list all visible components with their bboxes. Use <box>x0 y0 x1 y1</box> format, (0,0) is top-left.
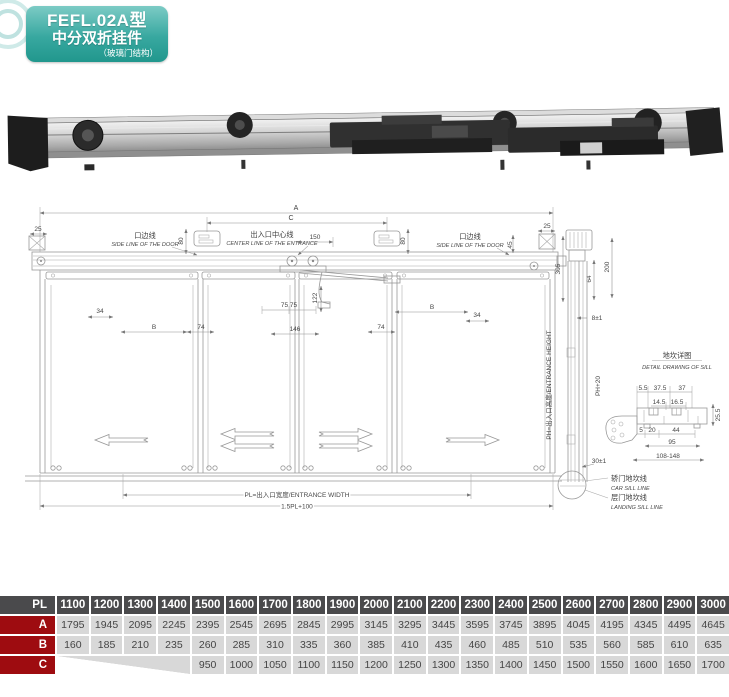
table-col-header: 2900 <box>664 596 696 614</box>
table-cell: 385 <box>360 636 392 654</box>
table-cell: 1350 <box>461 656 493 674</box>
table-cell: 1050 <box>259 656 291 674</box>
table-col-header: 2200 <box>428 596 460 614</box>
table-cell: 1000 <box>226 656 258 674</box>
arrow-right-double-2 <box>319 441 372 452</box>
table-cell: 460 <box>461 636 493 654</box>
table-cell: 4495 <box>664 616 696 634</box>
right-end-bracket <box>686 107 724 156</box>
catalog-page: { "badge": { "model": "FEFL.02A型", "name… <box>0 0 729 697</box>
table-col-header: 1900 <box>327 596 359 614</box>
total-width-label: 1.5PL+100 <box>281 504 313 511</box>
side-line-label-en-right: SIDE LINE OF THE DOOR <box>436 243 503 249</box>
dim-122: 122 <box>312 292 319 303</box>
table-empty-region <box>57 656 190 674</box>
sill-dim-5: 5 <box>639 427 643 434</box>
table-col-header: 2800 <box>630 596 662 614</box>
dim-34-left: 34 <box>96 308 104 315</box>
dim-A: A <box>294 205 299 212</box>
dim-C: C <box>288 215 293 222</box>
table-col-header: 1600 <box>226 596 258 614</box>
table-cell: 260 <box>192 636 224 654</box>
table-col-header: 1100 <box>57 596 89 614</box>
table-cell: 1795 <box>57 616 89 634</box>
sill-detail: 地坎详图 DETAIL DRAWING OF SILL 5.5 37.5 37 … <box>606 351 722 460</box>
table-header-row: PL 1100120013001400150016001700180019002… <box>0 596 729 614</box>
table-col-header: 1500 <box>192 596 224 614</box>
arrow-left-double-1 <box>221 429 274 440</box>
table-cell: 160 <box>57 636 89 654</box>
table-cell: 1945 <box>91 616 123 634</box>
table-cell: 485 <box>495 636 527 654</box>
landing-sill-line-en: LANDING SILL LINE <box>611 505 663 511</box>
table-cell: 1300 <box>428 656 460 674</box>
dim-34-right: 34 <box>473 312 481 319</box>
table-cell: 3445 <box>428 616 460 634</box>
table-cell: 585 <box>630 636 662 654</box>
table-cell: 2395 <box>192 616 224 634</box>
table-col-header: 2600 <box>563 596 595 614</box>
dim-B-2: B <box>430 304 434 311</box>
car-sill-line-cn: 轿门地坎线 <box>611 474 647 483</box>
table-row-label: B <box>0 636 55 654</box>
landing-sill-line-cn: 层门地坎线 <box>611 493 647 502</box>
ph20-label: PH+20 <box>595 376 602 396</box>
table-cell: 2245 <box>158 616 190 634</box>
table-row-B: B 16018521023526028531033536038541043546… <box>0 636 729 654</box>
table-cell: 3895 <box>529 616 561 634</box>
sill-dim-5.5: 5.5 <box>638 385 647 392</box>
sill-dim-95: 95 <box>668 439 676 446</box>
table-cell: 1600 <box>630 656 662 674</box>
bottom-dimensions: PL=出入口宽度/ENTRANCE WIDTH 1.5PL+100 <box>40 474 553 511</box>
table-col-header: 1300 <box>124 596 156 614</box>
bottom-guides <box>51 466 544 470</box>
table-cell: 1200 <box>360 656 392 674</box>
table-col-header: 3000 <box>697 596 729 614</box>
center-line-label-cn: 出入口中心线 <box>250 230 293 239</box>
table-cell: 1150 <box>327 656 359 674</box>
sill-dim-25.5: 25.5 <box>715 408 722 421</box>
table-cell: 2995 <box>327 616 359 634</box>
table-cell: 2095 <box>124 616 156 634</box>
table-cell: 3145 <box>360 616 392 634</box>
table-col-header: 2500 <box>529 596 561 614</box>
door-operator-photo <box>0 100 729 186</box>
sill-bracket <box>606 416 637 443</box>
sill-dim-37: 37 <box>678 385 686 392</box>
table-cell: 410 <box>394 636 426 654</box>
dim-B-1: B <box>152 324 156 331</box>
table-col-header: 2300 <box>461 596 493 614</box>
sill-dim-20: 20 <box>648 427 656 434</box>
table-row-C: C 95010001050110011501200125013001350140… <box>0 656 729 674</box>
table-col-header: 2000 <box>360 596 392 614</box>
table-cell: 1250 <box>394 656 426 674</box>
car-sill-line-en: CAR SILL LINE <box>611 486 650 492</box>
side-line-label-en-left: SIDE LINE OF THE DOOR <box>111 242 178 248</box>
top-dimensions: A C 25 25 45 口边线 SIDE LINE OF THE DOOR 口… <box>29 205 555 255</box>
technical-drawing: A C 25 25 45 口边线 SIDE LINE OF THE DOOR 口… <box>0 190 729 536</box>
table-cell: 1700 <box>697 656 729 674</box>
spec-table: PL 1100120013001400150016001700180019002… <box>0 596 729 676</box>
table-cell: 4045 <box>563 616 595 634</box>
table-row-A: A 17951945209522452395254526952845299531… <box>0 616 729 634</box>
arrow-right-double-1 <box>319 429 372 440</box>
dim-25-left: 25 <box>34 226 42 233</box>
table-cell: 4645 <box>697 616 729 634</box>
sill-dim-37.5: 37.5 <box>654 385 667 392</box>
table-cell: 535 <box>563 636 595 654</box>
sill-title-cn: 地坎详图 <box>663 351 692 360</box>
table-cell: 3595 <box>461 616 493 634</box>
table-cell: 635 <box>697 636 729 654</box>
table-cell: 235 <box>158 636 190 654</box>
table-row-label: A <box>0 616 55 634</box>
dim-80-right: 80 <box>400 237 407 245</box>
dim-150: 150 <box>310 234 321 241</box>
table-col-header: 1800 <box>293 596 325 614</box>
table-cell: 560 <box>596 636 628 654</box>
dim-146: 146 <box>290 326 301 333</box>
sill-dim-44: 44 <box>672 427 680 434</box>
product-structure-note: （玻璃门结构） <box>26 48 168 59</box>
table-col-header: 1200 <box>91 596 123 614</box>
product-badge: FEFL.02A型 中分双折挂件 （玻璃门结构） <box>26 6 168 62</box>
dim-80-left: 80 <box>178 237 185 245</box>
dim-305: 305 <box>555 263 562 274</box>
table-cell: 435 <box>428 636 460 654</box>
table-cell: 2695 <box>259 616 291 634</box>
entrance-height-label: PH=出入口高度/ENTRANCE HEIGHT <box>544 330 553 439</box>
dim-200: 200 <box>604 261 611 272</box>
table-cell: 510 <box>529 636 561 654</box>
table-cell: 1450 <box>529 656 561 674</box>
table-cell: 3745 <box>495 616 527 634</box>
dim-45: 45 <box>507 241 514 249</box>
dim-74-left: 74 <box>197 324 205 331</box>
dim-74-right: 74 <box>377 324 385 331</box>
sill-dim-16.5: 16.5 <box>671 399 684 406</box>
table-cell: 610 <box>664 636 696 654</box>
mid-dimensions: 34 B 74 75 75 122 146 74 B 34 <box>88 286 489 334</box>
product-model: FEFL.02A型 <box>26 11 168 30</box>
table-col-header: 2400 <box>495 596 527 614</box>
table-col-header: 2700 <box>596 596 628 614</box>
dim-30-1: 30±1 <box>592 458 607 465</box>
table-cell: 4345 <box>630 616 662 634</box>
table-cell: 335 <box>293 636 325 654</box>
table-cell: 310 <box>259 636 291 654</box>
table-cell: 2545 <box>226 616 258 634</box>
table-cell: 3295 <box>394 616 426 634</box>
table-row-label: C <box>0 656 55 674</box>
arrow-left-single <box>95 435 148 446</box>
table-header-pl: PL <box>0 596 55 614</box>
sill-title-en: DETAIL DRAWING OF SILL <box>642 365 712 371</box>
table-cell: 1100 <box>293 656 325 674</box>
side-line-label-cn-left: 口边线 <box>134 231 156 240</box>
entrance-width-label: PL=出入口宽度/ENTRANCE WIDTH <box>245 490 350 499</box>
sill-detail-circle <box>558 471 586 499</box>
table-col-header: 2100 <box>394 596 426 614</box>
table-cell: 2845 <box>293 616 325 634</box>
table-cell: 1400 <box>495 656 527 674</box>
dim-8-1: 8±1 <box>592 315 603 322</box>
table-cell: 1500 <box>563 656 595 674</box>
table-cell: 360 <box>327 636 359 654</box>
table-col-header: 1400 <box>158 596 190 614</box>
product-name: 中分双折挂件 <box>26 30 168 48</box>
sill-dim-108-148: 108-148 <box>656 453 680 460</box>
table-col-header: 1700 <box>259 596 291 614</box>
table-cell: 285 <box>226 636 258 654</box>
table-cell: 1550 <box>596 656 628 674</box>
table-cell: 210 <box>124 636 156 654</box>
table-cell: 950 <box>192 656 224 674</box>
sill-dim-14.5: 14.5 <box>653 399 666 406</box>
table-cell: 1650 <box>664 656 696 674</box>
side-line-label-cn-right: 口边线 <box>459 232 481 241</box>
table-cell: 185 <box>91 636 123 654</box>
left-end-bracket <box>8 115 49 172</box>
arrow-right-single <box>446 435 499 446</box>
arrow-left-double-2 <box>221 441 274 452</box>
release-lever <box>319 272 330 304</box>
table-cell: 4195 <box>596 616 628 634</box>
dim-25-right: 25 <box>543 223 551 230</box>
dim-75-75: 75 75 <box>281 302 298 309</box>
